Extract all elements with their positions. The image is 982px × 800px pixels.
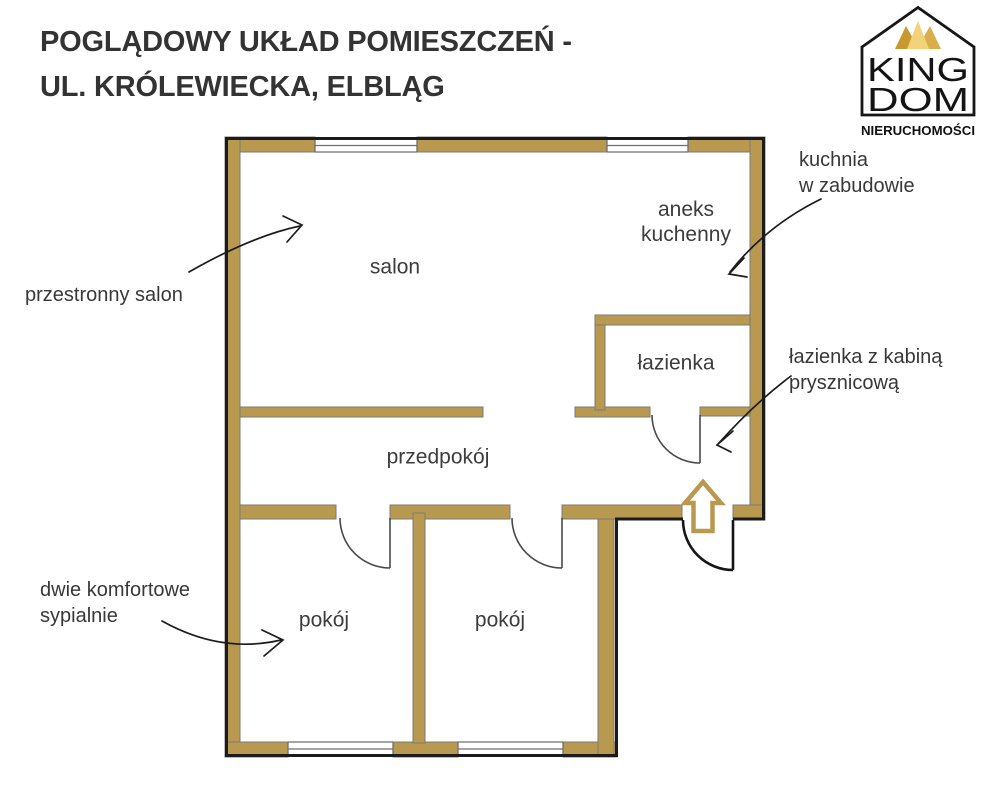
wall-bedroom-divider bbox=[413, 513, 425, 743]
note-salon: przestronny salon bbox=[25, 282, 183, 308]
room-label-lazienka: łazienka bbox=[637, 351, 714, 376]
room-label-pokoj1: pokój bbox=[299, 608, 349, 633]
note-kitchen-line2: w zabudowie bbox=[799, 173, 915, 199]
page: { "header": { "title_line1": "POGLĄDOWY … bbox=[0, 0, 982, 800]
note-kitchen-line1: kuchnia bbox=[799, 147, 915, 173]
room-label-salon: salon bbox=[370, 255, 420, 280]
room-label-aneks-line2: kuchenny bbox=[641, 222, 731, 247]
window-top-2 bbox=[607, 138, 688, 152]
floor-plan bbox=[0, 0, 982, 800]
note-bedrooms-line2: sypialnie bbox=[40, 603, 190, 629]
annotation-arrows bbox=[162, 199, 821, 656]
doors bbox=[340, 415, 733, 570]
wall-bath-top bbox=[595, 315, 750, 325]
arrow-salon bbox=[189, 226, 300, 272]
interior-walls bbox=[240, 315, 750, 743]
note-bathroom-line2: prysznicową bbox=[789, 370, 942, 396]
wall-bath-left bbox=[595, 315, 605, 410]
wall-hall-a bbox=[240, 505, 336, 519]
room-label-pokoj2: pokój bbox=[475, 608, 525, 633]
wall-hall-b bbox=[390, 505, 510, 519]
arrow-kitchen bbox=[730, 199, 821, 272]
note-bathroom-line1: łazienka z kabiną bbox=[789, 344, 942, 370]
door-bedroom1 bbox=[340, 518, 390, 568]
door-bathroom bbox=[652, 415, 700, 463]
room-label-przedpokoj: przedpokój bbox=[387, 445, 490, 470]
wall-hall-c bbox=[562, 505, 682, 519]
note-kitchen: kuchnia w zabudowie bbox=[799, 147, 915, 199]
window-bottom-1 bbox=[288, 742, 393, 756]
entrance-arrow-icon bbox=[685, 482, 721, 531]
window-bottom-2 bbox=[458, 742, 563, 756]
wall-salon-hall bbox=[240, 407, 483, 417]
wall-hall-d bbox=[733, 505, 764, 519]
window-top-1 bbox=[315, 138, 417, 152]
door-bedroom2 bbox=[512, 518, 562, 568]
room-label-aneks: aneks kuchenny bbox=[641, 197, 731, 247]
note-bedrooms: dwie komfortowe sypialnie bbox=[40, 577, 190, 629]
wall-bath-bottom-right bbox=[700, 407, 750, 416]
note-bathroom: łazienka z kabiną prysznicową bbox=[789, 344, 942, 396]
room-label-aneks-line1: aneks bbox=[641, 197, 731, 222]
arrow-kitchen-head bbox=[729, 258, 747, 277]
note-bedrooms-line1: dwie komfortowe bbox=[40, 577, 190, 603]
wall-bedroom2-right bbox=[598, 513, 614, 757]
wall-bath-bottom-left bbox=[575, 407, 650, 417]
